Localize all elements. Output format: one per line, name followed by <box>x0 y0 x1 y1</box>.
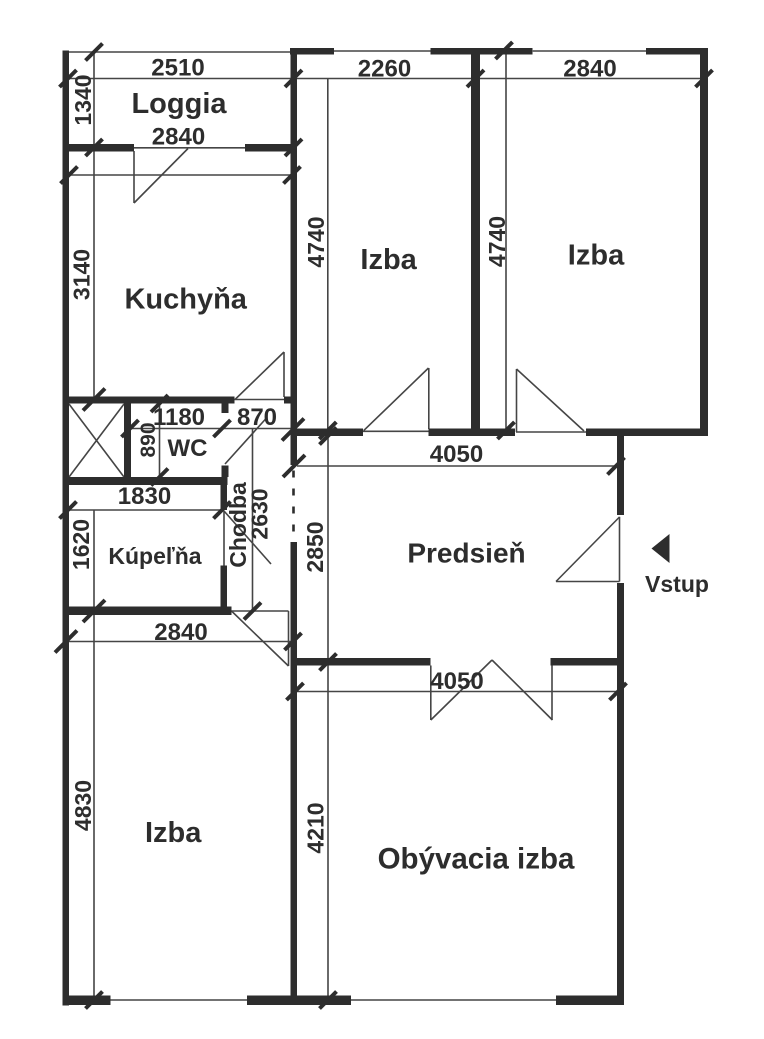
svg-text:Izba: Izba <box>145 817 202 849</box>
svg-text:Loggia: Loggia <box>131 88 227 120</box>
svg-text:1620: 1620 <box>68 519 94 570</box>
svg-text:4740: 4740 <box>303 216 329 267</box>
svg-text:Izba: Izba <box>360 244 417 276</box>
svg-text:4830: 4830 <box>70 780 96 831</box>
svg-text:1340: 1340 <box>70 74 96 125</box>
svg-text:WC: WC <box>168 435 208 462</box>
svg-text:1830: 1830 <box>118 483 171 510</box>
svg-text:1180: 1180 <box>153 404 205 431</box>
svg-text:Izba: Izba <box>568 240 625 272</box>
svg-text:890: 890 <box>137 422 160 457</box>
svg-text:Obývacia izba: Obývacia izba <box>378 843 575 876</box>
svg-text:4210: 4210 <box>303 802 329 853</box>
svg-text:2510: 2510 <box>151 55 204 82</box>
svg-text:Chodba: Chodba <box>225 482 251 568</box>
svg-text:2840: 2840 <box>563 56 616 83</box>
svg-text:3140: 3140 <box>69 249 95 300</box>
svg-text:2840: 2840 <box>152 124 205 151</box>
svg-text:4740: 4740 <box>484 216 510 267</box>
svg-text:Predsieň: Predsieň <box>407 538 525 569</box>
svg-text:2850: 2850 <box>302 521 328 572</box>
svg-text:4050: 4050 <box>430 441 483 468</box>
svg-text:2260: 2260 <box>358 56 411 83</box>
svg-text:4050: 4050 <box>430 668 483 695</box>
svg-text:870: 870 <box>237 404 277 431</box>
svg-text:2840: 2840 <box>154 619 207 646</box>
svg-text:Vstup: Vstup <box>645 571 709 597</box>
svg-text:Kuchyňa: Kuchyňa <box>124 284 247 316</box>
svg-text:Kúpeľňa: Kúpeľňa <box>108 543 201 569</box>
